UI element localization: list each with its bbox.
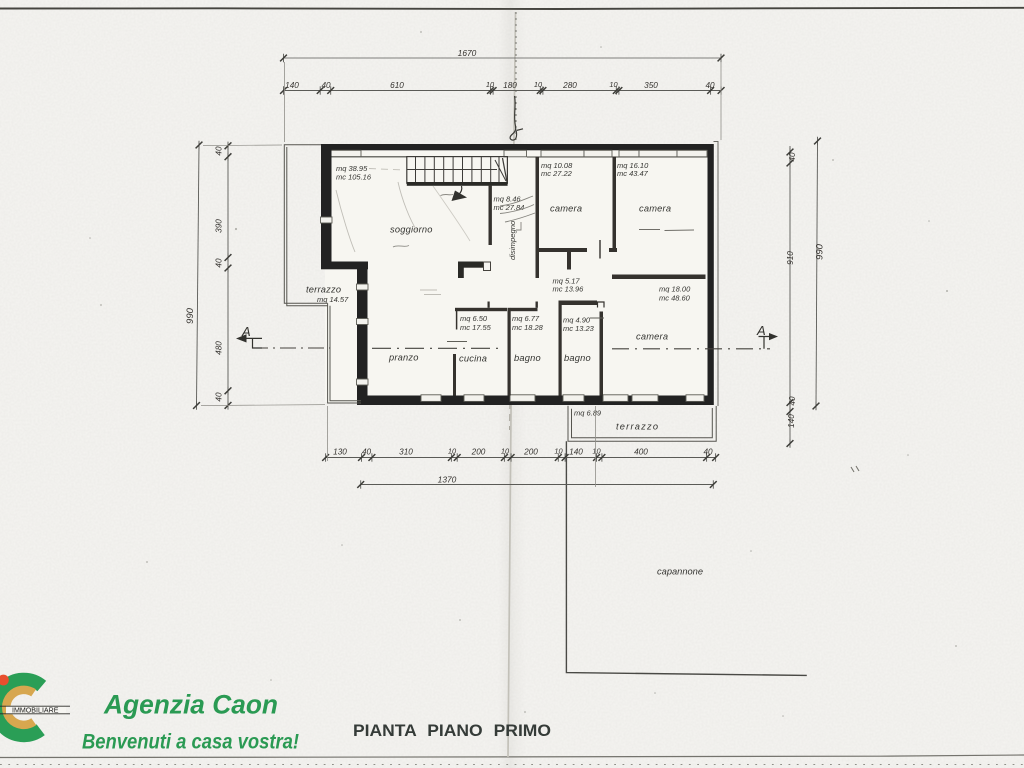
svg-text:40: 40: [215, 392, 224, 402]
svg-text:10: 10: [486, 80, 495, 89]
svg-text:pranzo: pranzo: [388, 353, 419, 363]
svg-text:400: 400: [634, 448, 648, 457]
svg-text:10: 10: [448, 447, 457, 456]
svg-text:130: 130: [333, 448, 347, 457]
svg-text:mc 17.55: mc 17.55: [460, 323, 492, 332]
svg-text:40: 40: [788, 152, 797, 162]
svg-text:40: 40: [362, 448, 372, 457]
svg-text:mq 6.89: mq 6.89: [574, 409, 602, 418]
svg-text:10: 10: [501, 447, 510, 456]
svg-text:990: 990: [185, 307, 196, 324]
svg-text:mq 6.77: mq 6.77: [512, 314, 540, 323]
svg-text:IMMOBILIARE: IMMOBILIARE: [12, 707, 59, 715]
svg-text:140: 140: [285, 81, 299, 90]
svg-text:10: 10: [592, 447, 601, 456]
svg-text:mq 18.00: mq 18.00: [659, 285, 691, 294]
svg-text:140: 140: [787, 414, 796, 428]
svg-text:mc 18.28: mc 18.28: [512, 323, 544, 332]
svg-text:camera: camera: [550, 204, 582, 214]
svg-text:10: 10: [609, 80, 618, 89]
svg-text:terrazzo: terrazzo: [616, 422, 659, 432]
svg-text:cucina: cucina: [459, 354, 487, 364]
svg-text:1370: 1370: [438, 475, 457, 485]
svg-text:40: 40: [705, 81, 715, 90]
svg-text:terrazzo: terrazzo: [306, 285, 341, 295]
svg-text:10: 10: [534, 80, 543, 89]
svg-text:990: 990: [815, 243, 826, 260]
svg-text:390: 390: [215, 219, 224, 233]
svg-text:disimpegno: disimpegno: [508, 220, 517, 260]
svg-text:200: 200: [523, 448, 538, 457]
svg-text:40: 40: [321, 81, 331, 90]
svg-text:Benvenuti a casa vostra!: Benvenuti a casa vostra!: [82, 730, 299, 754]
svg-text:camera: camera: [636, 332, 668, 342]
svg-text:A: A: [756, 323, 766, 338]
svg-text:200: 200: [471, 448, 486, 457]
svg-text:10: 10: [554, 447, 563, 456]
svg-text:40: 40: [215, 258, 224, 268]
svg-text:mc 27.22: mc 27.22: [541, 169, 573, 178]
svg-text:310: 310: [399, 448, 413, 457]
svg-text:610: 610: [390, 81, 404, 90]
svg-text:mc 13.23: mc 13.23: [563, 324, 595, 333]
svg-text:soggiorno: soggiorno: [390, 225, 433, 235]
svg-text:mq 14.57: mq 14.57: [317, 295, 349, 304]
svg-text:480: 480: [215, 341, 224, 355]
svg-text:mc 13.96: mc 13.96: [553, 285, 585, 294]
svg-text:280: 280: [562, 81, 577, 90]
svg-text:1670: 1670: [458, 48, 477, 58]
svg-text:180: 180: [503, 81, 517, 90]
svg-text:910: 910: [786, 251, 795, 265]
svg-text:Agenzia Caon: Agenzia Caon: [103, 690, 278, 720]
svg-text:bagno: bagno: [564, 353, 591, 363]
svg-text:mc 48.60: mc 48.60: [659, 294, 691, 303]
svg-text:140: 140: [569, 448, 583, 457]
svg-text:capannone: capannone: [657, 567, 703, 577]
svg-text:40: 40: [703, 448, 713, 457]
svg-text:mc 43.47: mc 43.47: [617, 169, 649, 178]
svg-text:350: 350: [644, 81, 658, 90]
svg-text:40: 40: [215, 146, 224, 156]
svg-text:bagno: bagno: [514, 353, 541, 363]
svg-text:PIANTA PIANO PRIMO: PIANTA PIANO PRIMO: [353, 721, 551, 740]
svg-text:mc 105.16: mc 105.16: [336, 173, 372, 182]
svg-text:camera: camera: [639, 204, 671, 214]
svg-text:40: 40: [788, 396, 797, 406]
svg-text:mq 6.50: mq 6.50: [460, 314, 488, 323]
